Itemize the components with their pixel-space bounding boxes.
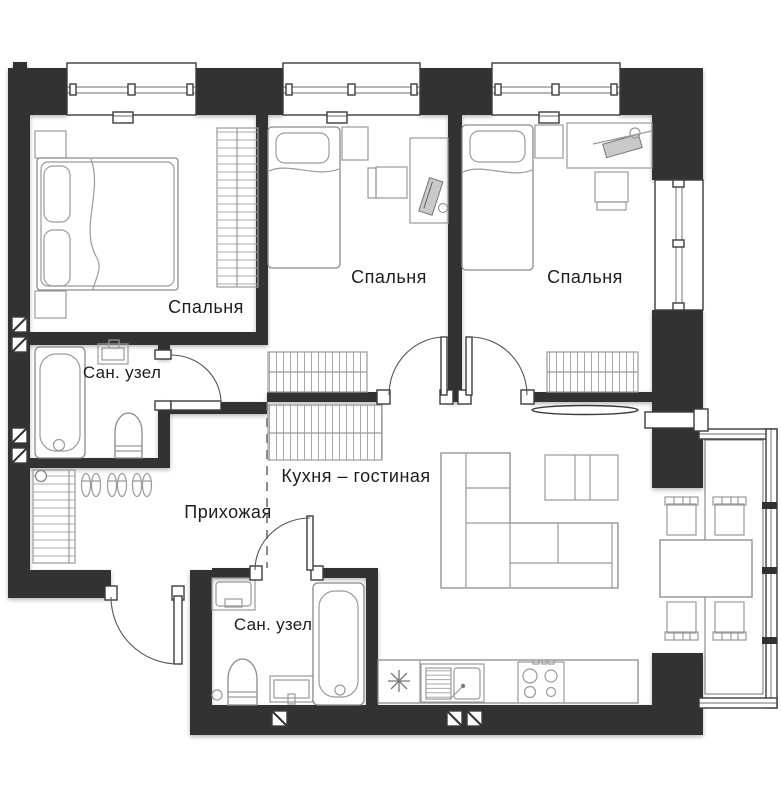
nightstand-icon <box>35 131 66 158</box>
window-icon <box>655 180 703 310</box>
bathtub-icon <box>35 347 85 458</box>
room-bedroom-2: Спальня <box>268 127 448 392</box>
toilet-icon <box>115 413 142 458</box>
door-bathroom-1 <box>155 350 221 410</box>
door-bathroom-2 <box>250 516 323 580</box>
chair-icon <box>665 497 698 535</box>
sink-icon <box>270 676 313 704</box>
floor-plan: Спальня Спальня <box>0 0 781 800</box>
chair-icon <box>713 497 746 535</box>
window-vent-icon <box>539 112 559 123</box>
room-bathroom-2: Сан. узел <box>212 578 364 705</box>
room-hallway: Прихожая <box>33 470 272 563</box>
room-bedroom-3: Спальня <box>462 123 652 392</box>
vent-icon <box>12 317 27 332</box>
tv-icon <box>532 406 638 415</box>
nightstand-icon <box>535 125 563 158</box>
sink-icon <box>98 340 128 364</box>
chair-icon <box>713 602 746 640</box>
tv-stand-icon <box>545 455 618 500</box>
chair-icon <box>595 172 628 210</box>
vent-icon <box>467 711 482 726</box>
window-vent-icon <box>113 112 133 123</box>
window-icon <box>283 63 420 115</box>
room-bedroom-1: Спальня <box>35 128 258 318</box>
corner-sofa-icon <box>441 453 618 588</box>
room-label-bedroom-2: Спальня <box>351 267 427 287</box>
balcony-table-icon <box>660 540 752 597</box>
kitchen-wardrobe-icon <box>268 405 382 460</box>
wardrobe-icon <box>217 128 258 287</box>
fridge-icon <box>388 670 410 692</box>
single-bed-icon <box>462 125 533 270</box>
floor-plan-page: Спальня Спальня <box>0 0 781 800</box>
vent-icon <box>272 711 287 726</box>
nightstand-icon <box>342 127 368 160</box>
shoes-icon <box>82 474 152 497</box>
closet-icon <box>33 470 75 563</box>
wardrobe-icon <box>547 352 638 392</box>
room-label-hallway: Прихожая <box>184 502 271 522</box>
chair-icon <box>665 602 698 640</box>
vent-icon <box>12 448 27 463</box>
vent-icon <box>12 337 27 352</box>
desk-icon <box>567 123 652 168</box>
window-icon <box>492 63 620 115</box>
floor-drain-icon <box>212 690 222 700</box>
window-vent-icon <box>327 112 347 123</box>
vent-icon <box>447 711 462 726</box>
room-label-bedroom-3: Спальня <box>547 267 623 287</box>
room-bathroom-1: Сан. узел <box>35 340 161 458</box>
balcony-door <box>645 409 708 431</box>
desk-icon <box>410 138 448 223</box>
room-label-bathroom-2: Сан. узел <box>234 615 312 634</box>
chair-icon <box>368 167 407 198</box>
single-bed-icon <box>268 127 340 268</box>
nightstand-icon <box>35 291 66 318</box>
washing-machine-icon <box>212 578 255 610</box>
room-label-bedroom-1: Спальня <box>168 297 244 317</box>
bathtub-icon <box>313 583 364 705</box>
door-bedroom-3 <box>458 337 534 404</box>
double-bed-icon <box>37 158 178 290</box>
vent-icon <box>12 428 27 443</box>
wardrobe-icon <box>268 352 367 392</box>
toilet-icon <box>228 659 257 705</box>
kitchen-counter-icon <box>378 660 638 703</box>
room-label-kitchen-living: Кухня – гостиная <box>281 466 430 486</box>
room-label-bathroom-1: Сан. узел <box>83 363 161 382</box>
entrance-door <box>105 586 184 664</box>
door-bedroom-2 <box>377 337 453 404</box>
window-icon <box>67 63 196 115</box>
